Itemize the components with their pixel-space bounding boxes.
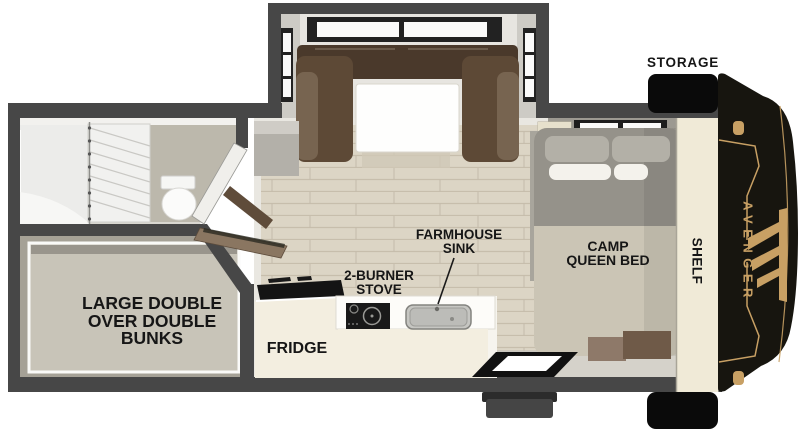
shower-curtain-icon xyxy=(88,122,150,226)
avenger-front-cap: AVENGER xyxy=(718,73,798,391)
two-burner-stove-icon xyxy=(346,303,390,329)
bunks-label-line3: BUNKS xyxy=(121,328,183,348)
bunks-label-line1: LARGE DOUBLE xyxy=(82,293,222,313)
toilet-icon xyxy=(161,176,196,220)
fridge xyxy=(255,276,345,378)
farmhouse-sink-label-line1: FARMHOUSE xyxy=(416,227,502,242)
entry-step xyxy=(482,392,557,418)
side-window-right-icon xyxy=(523,28,536,102)
stove-label-line1: 2-BURNER xyxy=(344,268,414,283)
pillow-icon xyxy=(549,164,611,180)
pillow-icon xyxy=(614,164,648,180)
farmhouse-sink-icon xyxy=(406,305,471,329)
cabinet-left-of-dinette xyxy=(254,121,299,176)
farmhouse-sink-label-line2: SINK xyxy=(443,241,476,256)
floorplan-page: AVENGER STORAGE CAMP QUEEN BED SHELF FAR… xyxy=(0,0,800,429)
storage-compartment-bottom xyxy=(647,392,718,429)
floorplan-drawing: AVENGER STORAGE CAMP QUEEN BED SHELF FAR… xyxy=(0,0,800,429)
storage-compartment-top xyxy=(648,74,718,113)
brand-name: AVENGER xyxy=(741,201,756,303)
storage-label: STORAGE xyxy=(647,55,719,70)
shelf-label: SHELF xyxy=(689,238,704,285)
stove-label-line2: STOVE xyxy=(356,282,402,297)
dinette-slideout xyxy=(281,17,536,168)
fridge-label: FRIDGE xyxy=(267,340,328,357)
slideout-window-icon xyxy=(307,17,502,42)
camp-queen-bed-label-line2: QUEEN BED xyxy=(566,252,649,268)
dinette-table xyxy=(356,84,459,152)
side-window-left-icon xyxy=(281,28,293,102)
